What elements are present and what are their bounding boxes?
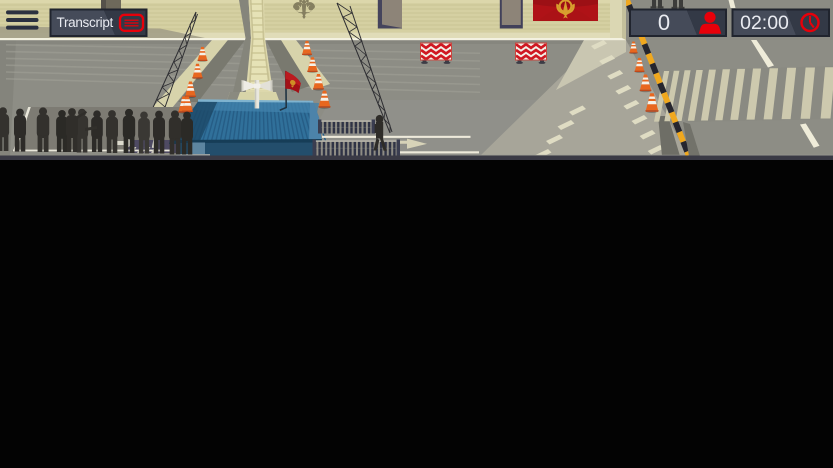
svg-text:0: 0 bbox=[658, 10, 670, 35]
svg-text:02:00: 02:00 bbox=[740, 12, 789, 34]
svg-text:Transcript: Transcript bbox=[57, 15, 114, 30]
